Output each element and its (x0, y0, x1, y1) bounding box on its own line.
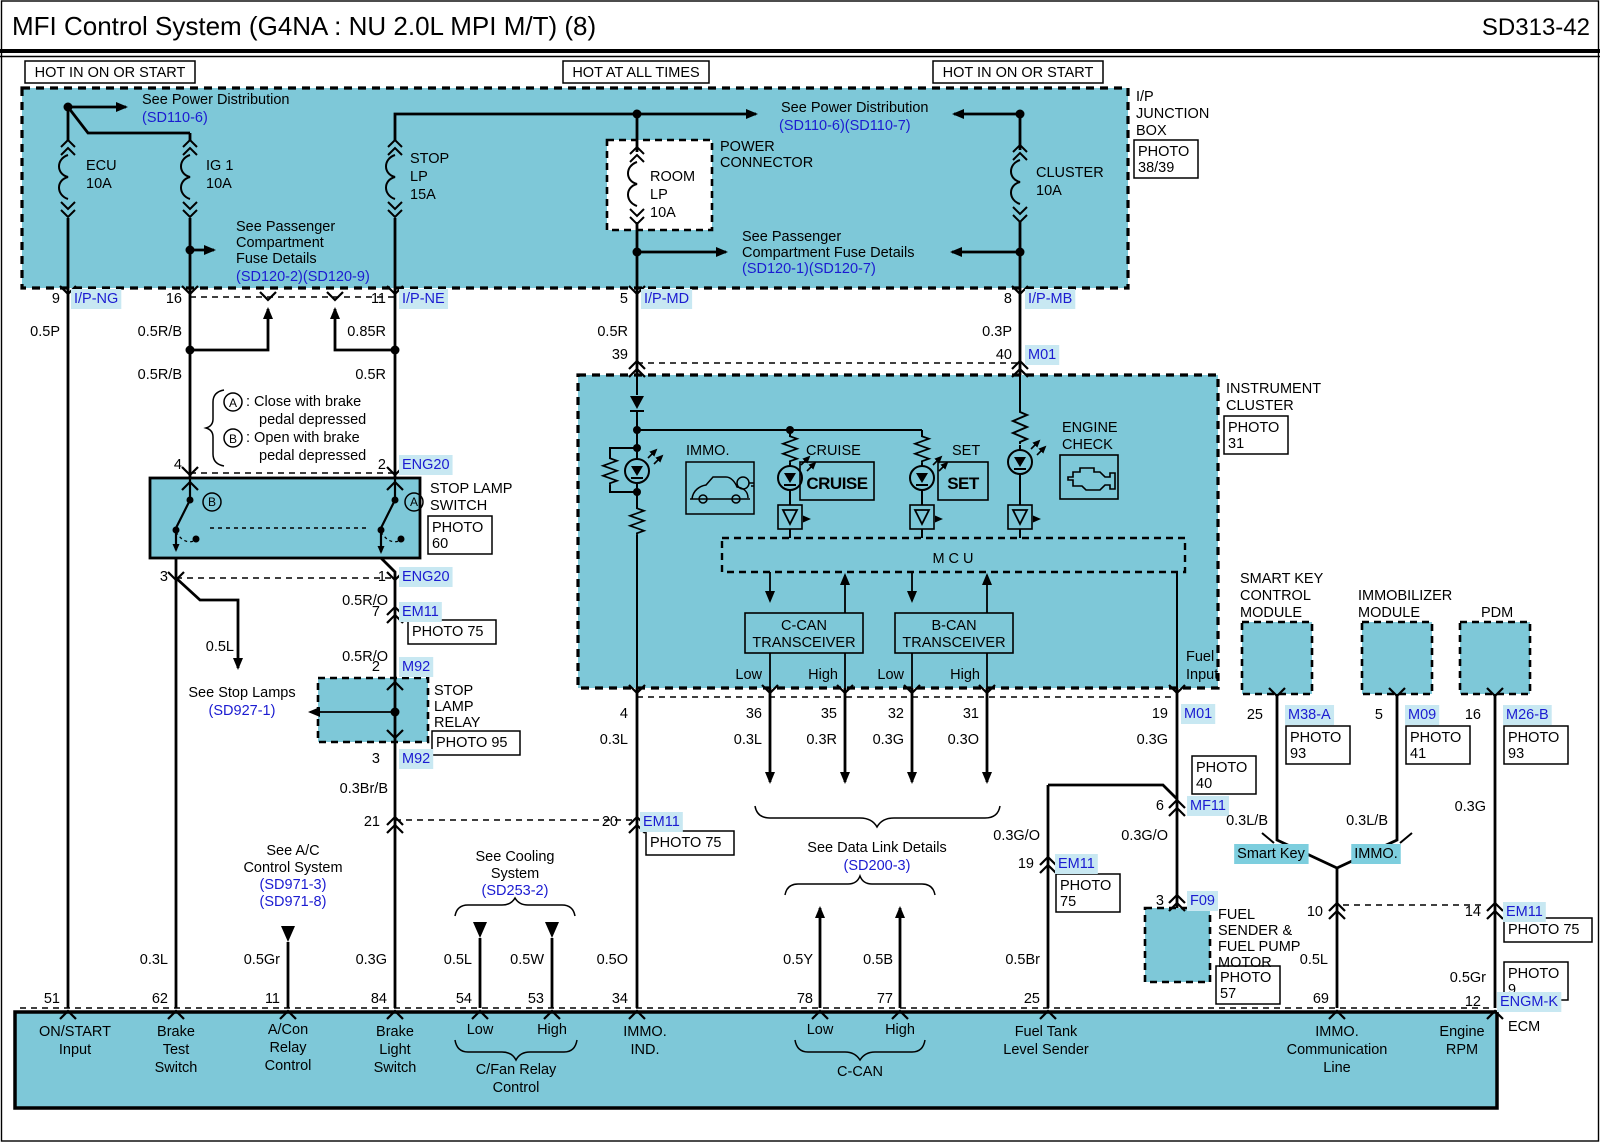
label-7-64: 7 (372, 604, 380, 620)
label-sender-132: SENDER & (1218, 923, 1292, 939)
label-pedal-depressed-49: pedal depressed (259, 412, 366, 428)
label-5-33: 5 (620, 291, 628, 307)
label-0-5gr-172: 0.5Gr (244, 952, 280, 968)
label-sd253-2-87: (SD253-2) (482, 883, 549, 899)
label-test-183: Test (163, 1042, 190, 1058)
label-fuel-pump-133: FUEL PUMP (1218, 939, 1300, 955)
label-immo-195: IMMO. (623, 1024, 667, 1040)
label-10a-5: 10A (206, 176, 232, 192)
label-11-162: 11 (265, 991, 280, 1007)
label-a-con-185: A/Con (268, 1022, 308, 1038)
label-smart-key-150: Smart Key (1237, 846, 1305, 862)
label-high-103: High (808, 667, 838, 683)
label-m01-114: M01 (1184, 706, 1212, 722)
label-39-42: 39 (612, 347, 628, 363)
label-ecu-2: ECU (86, 158, 117, 174)
label-sd200-3-126: (SD200-3) (844, 858, 911, 874)
photo-ref-label: PHOTO (1228, 420, 1279, 436)
label-20-79: 20 (602, 814, 618, 830)
label-5-143: 5 (1375, 707, 1383, 723)
label-light-189: Light (379, 1042, 410, 1058)
label-0-3r-117: 0.3R (806, 732, 837, 748)
label-power-16: POWER (720, 139, 775, 155)
label-sd120-1-sd120-7-22: (SD120-1)(SD120-7) (742, 261, 876, 277)
hot-in-on-or-start-label: HOT IN ON OR START (35, 65, 186, 81)
label-8-35: 8 (1004, 291, 1012, 307)
photo-ref-label: 93 (1290, 746, 1306, 762)
label-cruise-91: CRUISE (806, 443, 861, 459)
photo-ref-label: PHOTO (1138, 144, 1189, 160)
label-module-137: MODULE (1240, 605, 1302, 621)
label-0-3g-120: 0.3G (1137, 732, 1168, 748)
label-19-113: 19 (1152, 706, 1168, 722)
label-0-5w-175: 0.5W (510, 952, 544, 968)
label-see-passenger-6: See Passenger (236, 219, 335, 235)
label-brake-188: Brake (376, 1024, 414, 1040)
page-title: MFI Control System (G4NA : NU 2.0L MPI M… (12, 11, 596, 41)
label-0-5y-177: 0.5Y (783, 952, 813, 968)
label-em11-65: EM11 (402, 604, 439, 620)
label-m01-44: M01 (1028, 347, 1056, 363)
label-lp-14: LP (650, 187, 668, 203)
label-m09-144: M09 (1408, 707, 1436, 723)
doc-code: SD313-42 (1482, 14, 1590, 41)
label-sd927-1-71: (SD927-1) (209, 703, 276, 719)
label-sd971-8-84: (SD971-8) (260, 894, 327, 910)
label-immo-151: IMMO. (1354, 846, 1398, 862)
label-0-3o-119: 0.3O (948, 732, 979, 748)
label-switch-190: Switch (374, 1060, 417, 1076)
label-control-187: Control (265, 1058, 312, 1074)
photo-ref-label: PHOTO (1290, 730, 1341, 746)
label-m92-76: M92 (402, 751, 430, 767)
label-14-153: 14 (1465, 904, 1481, 920)
photo-ref-label: PHOTO (1508, 966, 1559, 982)
label-32-111: 32 (888, 706, 904, 722)
label-25-169: 25 (1024, 991, 1040, 1007)
label-connector-17: CONNECTOR (720, 155, 813, 171)
label-engm-k-158: ENGM-K (1500, 994, 1558, 1010)
label-sd120-2-sd120-9-9: (SD120-2)(SD120-9) (236, 269, 370, 285)
label-system-86: System (491, 866, 539, 882)
label-high-198: High (885, 1022, 915, 1038)
label-m26-b-146: M26-B (1506, 707, 1549, 723)
label-0-85r-39: 0.85R (347, 324, 386, 340)
label-ecm-159: ECM (1508, 1019, 1540, 1035)
label-0-5l-69: 0.5L (206, 639, 234, 655)
label-fuel-tank-200: Fuel Tank (1015, 1024, 1078, 1040)
label-c-can-199: C-CAN (837, 1064, 883, 1080)
label-25-141: 25 (1247, 707, 1263, 723)
label-0-5r-b-38: 0.5R/B (138, 324, 182, 340)
label-10-152: 10 (1307, 904, 1323, 920)
label-0-3g-149: 0.3G (1455, 799, 1486, 815)
label-40-43: 40 (996, 347, 1012, 363)
fuel-sender-box (1145, 908, 1210, 982)
label-immo-202: IMMO. (1315, 1024, 1359, 1040)
label-cluster-89: CLUSTER (1226, 398, 1294, 414)
label-2-54: 2 (378, 457, 386, 473)
wiring-diagram-page: MFI Control System (G4NA : NU 2.0L MPI M… (0, 0, 1600, 1143)
ecm-box (15, 1012, 1497, 1108)
label-0-5r-b-45: 0.5R/B (138, 367, 182, 383)
immobilizer-module-box (1362, 622, 1432, 694)
label-brake-182: Brake (157, 1024, 195, 1040)
photo-ref-label: PHOTO (1508, 730, 1559, 746)
label-fuel-106: Fuel (1186, 649, 1214, 665)
label-2-67: 2 (372, 659, 380, 675)
label-eng20-55: ENG20 (402, 457, 450, 473)
label-see-cooling-85: See Cooling (476, 849, 555, 865)
label-i-p-25: I/P (1136, 89, 1154, 105)
photo-ref-label: 75 (1060, 894, 1076, 910)
label-check-94: CHECK (1062, 437, 1113, 453)
label-low-197: Low (807, 1022, 834, 1038)
label-6-121: 6 (1156, 798, 1164, 814)
label-sd110-6-1: (SD110-6) (142, 110, 208, 126)
label-54-164: 54 (456, 991, 472, 1007)
label-0-3g-o-124: 0.3G/O (1121, 828, 1168, 844)
label-level-sender-201: Level Sender (1003, 1042, 1089, 1058)
label-set-92: SET (952, 443, 980, 459)
photo-ref-label: 31 (1228, 436, 1244, 452)
label-compartment-fuse-details-21: Compartment Fuse Details (742, 245, 914, 261)
label-open-with-brake-51: : Open with brake (246, 430, 360, 446)
label-room-13: ROOM (650, 169, 695, 185)
label-em11-80: EM11 (643, 814, 680, 830)
label-control-system-82: Control System (243, 860, 342, 876)
mfi-control-system-diagram: MFI Control System (G4NA : NU 2.0L MPI M… (0, 0, 1600, 1143)
label-11-31: 11 (371, 291, 386, 307)
label-15a-12: 15A (410, 187, 436, 203)
label-4-108: 4 (620, 706, 628, 722)
photo-ref-label: 38/39 (1138, 160, 1174, 176)
label-immo-90: IMMO. (686, 443, 730, 459)
label-em11-154: EM11 (1506, 904, 1543, 920)
photo-ref-label: PHOTO (1060, 878, 1111, 894)
label-0-5r-o-63: 0.5R/O (342, 593, 388, 609)
label-34-166: 34 (612, 991, 628, 1007)
label-low-191: Low (467, 1022, 494, 1038)
label-lp-11: LP (410, 169, 428, 185)
label-9-28: 9 (52, 291, 60, 307)
label-i-p-ne-32: I/P-NE (402, 291, 445, 307)
label-1-61: 1 (378, 569, 386, 585)
label-i-p-ng-29: I/P-NG (74, 291, 118, 307)
label-0-3g-118: 0.3G (873, 732, 904, 748)
label-stop-72: STOP (434, 683, 473, 699)
label-ind-196: IND. (631, 1042, 660, 1058)
label-35-110: 35 (821, 706, 837, 722)
label-0-5r-o-66: 0.5R/O (342, 649, 388, 665)
label-junction-26: JUNCTION (1136, 106, 1209, 122)
stop-lamp-relay-box (318, 678, 428, 742)
label-immobilizer-138: IMMOBILIZER (1358, 588, 1452, 604)
label-line-204: Line (1323, 1060, 1350, 1076)
photo-ref-label: PHOTO (1220, 970, 1271, 986)
label-rpm-206: RPM (1446, 1042, 1478, 1058)
photo-ref-label: PHOTO 75 (650, 835, 721, 851)
photo-ref-label: 41 (1410, 746, 1426, 762)
label-high-105: High (950, 667, 980, 683)
label-f09-130: F09 (1190, 893, 1215, 909)
label-see-power-distribution-0: See Power Distribution (142, 92, 290, 108)
label-fuse-details-8: Fuse Details (236, 251, 317, 267)
label-12-157: 12 (1465, 994, 1481, 1010)
photo-ref-label: PHOTO 75 (1508, 922, 1579, 938)
label-cluster-23: CLUSTER (1036, 165, 1104, 181)
label-a-47: A (229, 396, 237, 410)
label-switch-184: Switch (155, 1060, 198, 1076)
photo-ref-label: PHOTO (432, 520, 483, 536)
label-m38-a-142: M38-A (1288, 707, 1331, 723)
label-lamp-73: LAMP (434, 699, 474, 715)
label-69-170: 69 (1313, 991, 1329, 1007)
photo-ref-label: 40 (1196, 776, 1212, 792)
label-19-127: 19 (1018, 856, 1034, 872)
label-16-30: 16 (166, 291, 182, 307)
label-motor-134: MOTOR (1218, 955, 1272, 971)
label-53-165: 53 (528, 991, 544, 1007)
label-0-3l-b-148: 0.3L/B (1346, 813, 1388, 829)
label-b-56: B (208, 495, 216, 509)
label-c-can-98: C-CAN (781, 618, 827, 634)
label-compartment-7: Compartment (236, 235, 324, 251)
photo-ref-label: 93 (1508, 746, 1524, 762)
label-3-60: 3 (160, 569, 168, 585)
photo-ref-label: PHOTO 95 (436, 735, 507, 751)
label-0-3g-173: 0.3G (356, 952, 387, 968)
label-relay-186: Relay (269, 1040, 307, 1056)
pdm-box (1460, 622, 1530, 694)
photo-ref-label: PHOTO (1410, 730, 1461, 746)
label-i-p-md-34: I/P-MD (644, 291, 689, 307)
label-control-194: Control (493, 1080, 540, 1096)
label-see-a-c-81: See A/C (266, 843, 319, 859)
label-0-3br-b-77: 0.3Br/B (340, 781, 388, 797)
label-engine-205: Engine (1439, 1024, 1484, 1040)
label-10a-15: 10A (650, 205, 676, 221)
label-10a-3: 10A (86, 176, 112, 192)
label-control-136: CONTROL (1240, 588, 1311, 604)
hot-in-on-or-start-label: HOT IN ON OR START (943, 65, 1094, 81)
label-transceiver-99: TRANSCEIVER (752, 635, 855, 651)
instrument-cluster-box (578, 375, 1218, 688)
label-78-167: 78 (797, 991, 813, 1007)
label-see-stop-lamps-70: See Stop Lamps (188, 685, 295, 701)
label-ig-1-4: IG 1 (206, 158, 233, 174)
label-module-139: MODULE (1358, 605, 1420, 621)
label-see-passenger-20: See Passenger (742, 229, 841, 245)
label-set-96: SET (947, 474, 980, 493)
label-see-power-distribution-18: See Power Distribution (781, 100, 929, 116)
label-see-data-link-details-125: See Data Link Details (807, 840, 946, 856)
label-transceiver-101: TRANSCEIVER (902, 635, 1005, 651)
label-0-5o-176: 0.5O (597, 952, 628, 968)
label-a-57: A (410, 495, 418, 509)
label-31-112: 31 (963, 706, 979, 722)
label-m92-68: M92 (402, 659, 430, 675)
label-sd971-3-83: (SD971-3) (260, 877, 327, 893)
label-0-3l-116: 0.3L (734, 732, 762, 748)
label-cruise-95: CRUISE (806, 474, 867, 493)
label-0-3l-171: 0.3L (140, 952, 168, 968)
label-b-can-100: B-CAN (931, 618, 976, 634)
label-0-5br-179: 0.5Br (1005, 952, 1040, 968)
label-3-129: 3 (1156, 893, 1164, 909)
label-b-50: B (229, 432, 237, 446)
label-21-78: 21 (364, 814, 380, 830)
label-51-160: 51 (44, 991, 60, 1007)
label-close-with-brake-48: : Close with brake (246, 394, 361, 410)
label-instrument-88: INSTRUMENT (1226, 381, 1321, 397)
label-77-168: 77 (877, 991, 893, 1007)
label-pdm-140: PDM (1481, 605, 1513, 621)
label-0-5l-155: 0.5L (1300, 952, 1328, 968)
label-0-3l-b-147: 0.3L/B (1226, 813, 1268, 829)
photo-ref-label: 57 (1220, 986, 1236, 1002)
label-10a-24: 10A (1036, 183, 1062, 199)
smart-key-module-box (1242, 622, 1312, 694)
label-0-3l-115: 0.3L (600, 732, 628, 748)
label-16-145: 16 (1465, 707, 1481, 723)
label-0-3g-o-123: 0.3G/O (993, 828, 1040, 844)
label-mf11-122: MF11 (1190, 798, 1226, 814)
label-fuel-131: FUEL (1218, 907, 1255, 923)
label-low-104: Low (877, 667, 904, 683)
label-pedal-depressed-52: pedal depressed (259, 448, 366, 464)
label-0-5b-178: 0.5B (863, 952, 893, 968)
hot-at-all-times-label: HOT AT ALL TIMES (572, 65, 699, 81)
label-input-107: Input (1186, 667, 1218, 683)
reference-arrowheads (281, 922, 559, 942)
label-high-192: High (537, 1022, 567, 1038)
label-sd110-6-sd110-7-19: (SD110-6)(SD110-7) (779, 118, 911, 134)
label-engine-93: ENGINE (1062, 420, 1118, 436)
label-62-161: 62 (152, 991, 168, 1007)
photo-ref-label: PHOTO 75 (412, 624, 483, 640)
label-low-102: Low (735, 667, 762, 683)
label-36-109: 36 (746, 706, 762, 722)
label-m-c-u-97: M C U (932, 551, 973, 567)
label-input-181: Input (59, 1042, 91, 1058)
label-eng20-62: ENG20 (402, 569, 450, 585)
label-0-5r-40: 0.5R (597, 324, 628, 340)
label-i-p-mb-36: I/P-MB (1028, 291, 1072, 307)
label-0-5gr-156: 0.5Gr (1450, 970, 1486, 986)
label-0-5l-174: 0.5L (444, 952, 472, 968)
label-switch-59: SWITCH (430, 498, 487, 514)
label-3-75: 3 (372, 751, 380, 767)
label-4-53: 4 (174, 457, 182, 473)
label-em11-128: EM11 (1058, 856, 1095, 872)
label-box-27: BOX (1136, 123, 1167, 139)
label-on-start-180: ON/START (39, 1024, 111, 1040)
label-c-fan-relay-193: C/Fan Relay (476, 1062, 557, 1078)
label-0-5r-46: 0.5R (355, 367, 386, 383)
label-stop-10: STOP (410, 151, 449, 167)
label-relay-74: RELAY (434, 715, 481, 731)
label-84-163: 84 (371, 991, 387, 1007)
photo-ref-label: PHOTO (1196, 760, 1247, 776)
label-0-3p-41: 0.3P (982, 324, 1012, 340)
label-smart-key-135: SMART KEY (1240, 571, 1324, 587)
photo-ref-label: 60 (432, 536, 448, 552)
label-0-5p-37: 0.5P (30, 324, 60, 340)
label-stop-lamp-58: STOP LAMP (430, 481, 512, 497)
label-communication-203: Communication (1287, 1042, 1388, 1058)
